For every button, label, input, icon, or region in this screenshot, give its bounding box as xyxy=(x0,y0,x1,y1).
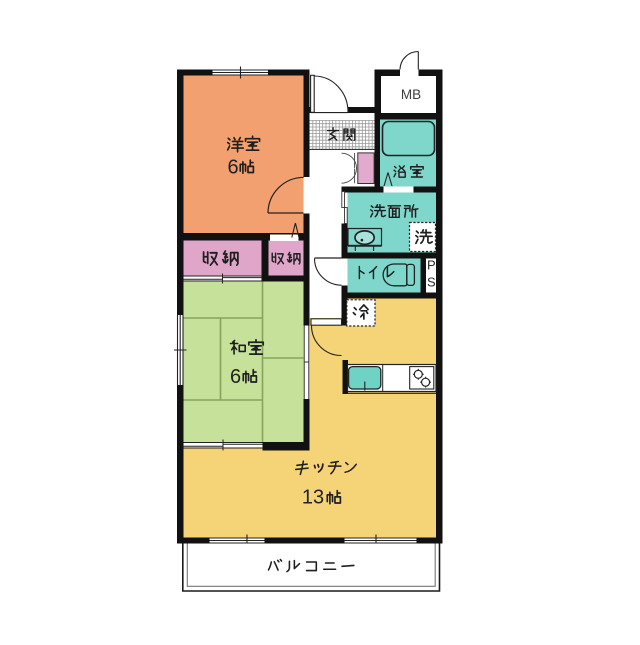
svg-text:6: 6 xyxy=(230,366,241,388)
svg-text:6: 6 xyxy=(227,157,238,179)
svg-text:MB: MB xyxy=(401,87,421,102)
svg-text:13: 13 xyxy=(302,487,324,509)
svg-text:S: S xyxy=(427,275,436,290)
svg-text:P: P xyxy=(427,258,436,273)
